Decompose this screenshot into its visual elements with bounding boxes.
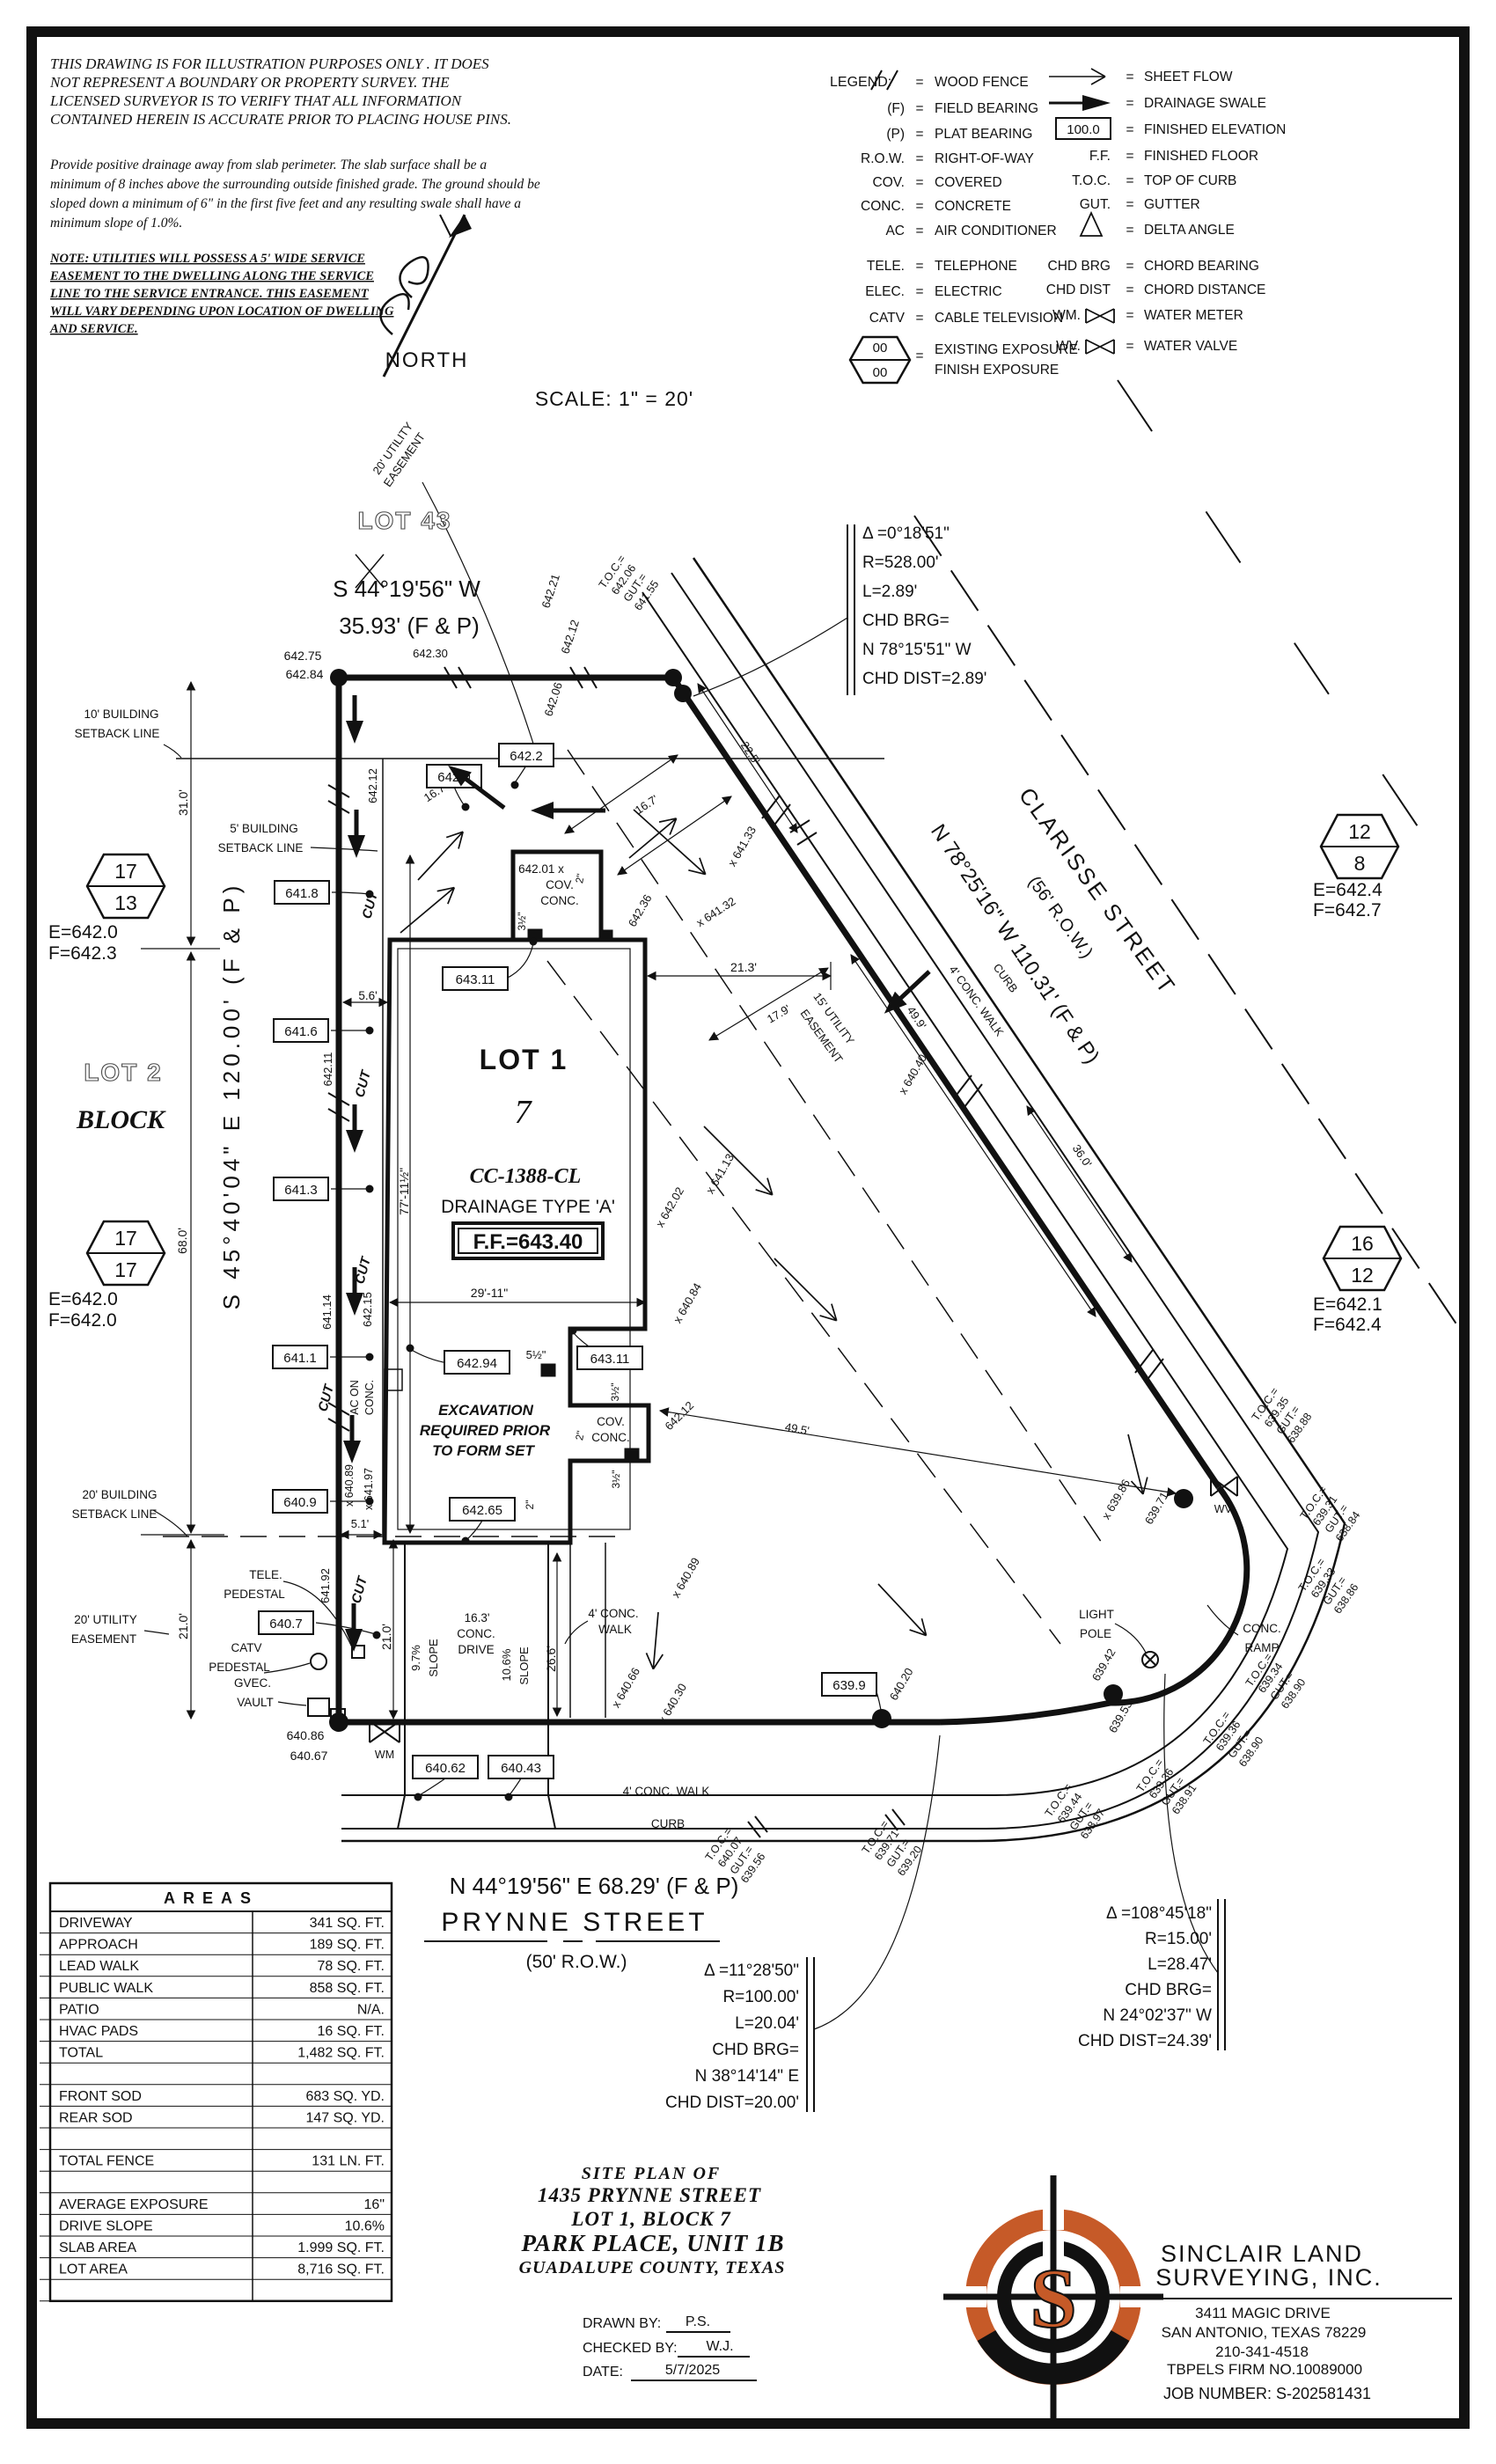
water-valve-legend-icon [1086, 340, 1114, 354]
elevation-box-value: 639.9 [832, 1678, 866, 1693]
elevation-box-value: 642.2 [510, 749, 543, 764]
curve-data-2-line: L=20.04' [735, 2014, 799, 2033]
finished-elevation-box: 640.7 [259, 1611, 313, 1634]
finished-elevation-box: 642.2 [499, 744, 554, 766]
toc-gutter-stack: T.O.C.=639.31GUT.=638.84 [1298, 1484, 1363, 1544]
plan-label: PEDESTAL [209, 1661, 270, 1674]
areas-row-value: 16 SQ. FT. [318, 2024, 385, 2039]
finished-elevation-box: 642.94 [444, 1351, 510, 1374]
plan-label: 21.3' [730, 960, 757, 974]
finish-exposure-value: 00 [873, 365, 888, 380]
toc-gutter-stack: T.O.C.=639.36GUT.=638.90 [1201, 1709, 1266, 1769]
curve-data-1-line: Δ =0°18'51" [862, 524, 950, 543]
legend-desc: CHORD DISTANCE [1144, 282, 1265, 297]
plan-label: TO FORM SET [432, 1442, 535, 1459]
plan-label: CURB [651, 1817, 685, 1830]
plan-label: 16.3' [465, 1611, 490, 1624]
disclaimer: THIS DRAWING IS FOR ILLUSTRATION PURPOSE… [49, 55, 511, 128]
plan-label: WALK [598, 1623, 632, 1636]
plan-label: x 641.32 [694, 894, 738, 929]
exposure-hexagon: 1612 [1324, 1227, 1401, 1290]
legend-symbol-text: GUT. [1080, 197, 1111, 212]
plan-label: x 640.30 [656, 1681, 689, 1726]
legend-symbol-text: R.O.W. [861, 151, 905, 166]
plan-label: 4' CONC. WALK [623, 1785, 710, 1798]
plan-label: 7 [515, 1094, 533, 1131]
finished-elevation-box: 641.6 [274, 1019, 328, 1042]
sheet-flow-arrow [418, 832, 463, 880]
plan-label: CATV [231, 1641, 261, 1654]
plan-label: 640.86 [287, 1728, 325, 1742]
drainage-swale-arrow [346, 1104, 363, 1153]
areas-table-title: AREAS [164, 1889, 259, 1907]
utility-note-line: NOTE: UTILITIES WILL POSSESS A 5' WIDE S… [49, 252, 365, 266]
water-meter-legend-icon [1086, 309, 1114, 323]
plan-label: S 45°40'04" E 120.00' (F & P) [218, 882, 245, 1310]
legend-symbol-text: CHD DIST [1046, 282, 1111, 297]
legend-symbol-text: ELEC. [865, 284, 905, 299]
plan-label: 641.92 [319, 1568, 332, 1603]
plan-label: CUT [348, 1573, 370, 1605]
legend-desc: FINISH EXPOSURE [935, 363, 1059, 378]
curve-data-1-line: CHD DIST=2.89' [862, 670, 986, 688]
step-mark [601, 930, 612, 941]
sheet-label: W.J. [706, 2339, 733, 2354]
curve-data-3-line: CHD DIST=24.39' [1078, 2032, 1212, 2050]
areas-row-label: LEAD WALK [59, 1959, 139, 1974]
row-line-dashed [1118, 380, 1461, 891]
sheet-label: 5/7/2025 [665, 2363, 720, 2378]
elevation-box-value: 641.8 [285, 886, 319, 901]
legend-equals: = [915, 311, 923, 326]
curve-data-bars [807, 524, 1225, 2112]
plan-label: 3½" [609, 1383, 621, 1402]
arrow-lines [629, 818, 677, 858]
legend-desc: WATER VALVE [1144, 339, 1237, 354]
disclaimer-line: CONTAINED HEREIN IS ACCURATE PRIOR TO PL… [50, 111, 511, 128]
plan-label: 68.0' [175, 1228, 189, 1254]
plan-label: BLOCK [76, 1105, 166, 1134]
plan-label: 642.21 [539, 572, 562, 609]
plan-label: 642.15 [361, 1292, 374, 1327]
plan-label: F=642.4 [1313, 1315, 1382, 1335]
plan-label: SLOPE [517, 1646, 531, 1685]
curve-data-3-line: Δ =108°45'18" [1106, 1904, 1212, 1923]
plan-label: x 640.84 [671, 1280, 704, 1325]
utility-note-line: EASEMENT TO THE DWELLING ALONG THE SERVI… [49, 269, 374, 283]
sheet-label: S [1030, 2251, 1076, 2345]
curve-data-2-line: R=100.00' [722, 1988, 799, 2006]
arrow-head [348, 835, 365, 858]
plan-label: 21.0' [176, 1613, 190, 1639]
plan-label: N 44°19'56" E 68.29' (F & P) [450, 1873, 739, 1899]
plan-label: CUT [352, 1067, 374, 1099]
plan-label: 642.36 [626, 892, 655, 929]
toc-gutter-stack: T.O.C.=639.71GUT.=639.20 [860, 1818, 925, 1878]
legend-desc: ELECTRIC [935, 284, 1002, 299]
drainage-note-line: minimum slope of 1.0%. [50, 216, 182, 231]
plan-label: SETBACK LINE [218, 841, 304, 854]
arrow-head [531, 802, 554, 819]
plan-label: 4' CONC. [588, 1607, 638, 1620]
plan-label: COV. [546, 878, 574, 891]
curve-data-2-line: CHD BRG= [712, 2041, 799, 2059]
plan-label: 10' BUILDING [84, 708, 158, 721]
plan-label: 3½" [516, 913, 528, 931]
drainage-note-line: sloped down a minimum of 6" in the first… [50, 196, 521, 211]
sheet-label: 3411 MAGIC DRIVE [1195, 2305, 1331, 2321]
areas-row-label: REAR SOD [59, 2110, 133, 2125]
step-mark [625, 1448, 639, 1461]
sheet-flow-icon [1049, 69, 1105, 84]
legend-desc: CONCRETE [935, 199, 1011, 214]
plan-label: GVEC. [234, 1676, 271, 1690]
plan-label: 642.01 x [518, 862, 564, 876]
legend-equals: = [915, 259, 923, 274]
toc-gutter-stack: T.O.C.=642.06GUT.=641.55 [597, 553, 662, 612]
plan-label: x 640.40 [896, 1052, 929, 1096]
sheet-label: TBPELS FIRM NO.10089000 [1167, 2361, 1362, 2378]
sheet-label: DATE: [583, 2365, 623, 2380]
areas-row-label: PATIO [59, 2002, 99, 2017]
legend-equals: = [1126, 173, 1133, 188]
finished-elevation-box: 640.62 [413, 1756, 478, 1778]
legend-equals: = [1126, 122, 1133, 137]
plan-label: LIGHT [1079, 1608, 1114, 1621]
dimension-line [660, 1411, 1176, 1493]
areas-row-value: 189 SQ. FT. [310, 1938, 385, 1953]
plan-label: 2" [573, 1430, 587, 1441]
plan-label: CC-1388-CL [470, 1165, 582, 1188]
legend-equals: = [915, 224, 923, 238]
sheet-label: 210-341-4518 [1215, 2343, 1309, 2360]
finished-elevation-sample: 100.0 [1067, 122, 1100, 137]
elevation-box-value: 642.94 [457, 1356, 497, 1371]
plan-label: 641.14 [320, 1294, 334, 1330]
legend-desc: TOP OF CURB [1144, 173, 1236, 188]
areas-row-value: N/A. [357, 2002, 385, 2017]
toc-gutter-stack: T.O.C.=639.35GUT.=638.88 [1250, 1385, 1315, 1445]
finished-elevation-box: 640.43 [488, 1756, 554, 1778]
plan-label: VAULT [237, 1696, 274, 1709]
curve-data-1-line: R=528.00' [862, 554, 939, 572]
sheet-flow-arrow [878, 1584, 927, 1636]
plan-label: 20' BUILDING [82, 1488, 157, 1501]
finished-elevation-box: 641.3 [274, 1177, 328, 1200]
sheet-label: SAN ANTONIO, TEXAS 78229 [1162, 2324, 1367, 2341]
sheet-flow-arrow [629, 818, 677, 858]
exposure-hexagon: 1717 [87, 1221, 165, 1285]
finish-exposure-value: 17 [114, 1258, 137, 1281]
sheet-label: SITE PLAN OF [582, 2164, 721, 2183]
plan-label: 5.1' [351, 1517, 370, 1530]
plan-label: CONC. [363, 1380, 376, 1415]
sheet-label: SURVEYING, INC. [1155, 2264, 1382, 2291]
sheet-flow-arrow [646, 1612, 663, 1669]
areas-row-label: HVAC PADS [59, 2024, 138, 2039]
plan-label: (50' R.O.W.) [526, 1952, 627, 1972]
legend-desc: GUTTER [1144, 197, 1200, 212]
legend-equals: = [1126, 223, 1133, 238]
elevation-box-value: 641.1 [283, 1351, 317, 1366]
plan-label: x 641.97 [363, 1468, 375, 1510]
areas-row-label: LOT AREA [59, 2262, 128, 2277]
arrow-lines [878, 1584, 927, 1636]
plan-label: PRYNNE STREET [441, 1908, 708, 1937]
plan-label: DRIVE [458, 1643, 494, 1656]
drainage-swale-arrow [343, 1415, 361, 1463]
elevation-box-value: 640.43 [501, 1761, 541, 1776]
legend-equals: = [915, 127, 923, 142]
legend-equals: = [915, 284, 923, 299]
arrow-lines [400, 888, 454, 933]
legend-desc: FINISHED FLOOR [1144, 149, 1258, 164]
legend-equals: = [915, 101, 923, 116]
plan-label: 639.71 [1142, 1490, 1171, 1527]
legend-equals: = [915, 348, 923, 363]
legend-desc: CABLE TELEVISION [935, 311, 1063, 326]
generated-annotations: THIS DRAWING IS FOR ILLUSTRATION PURPOSE… [40, 55, 1401, 2402]
legend-equals: = [1126, 70, 1133, 84]
arrow-lines [646, 1612, 663, 1669]
plan-label: 3½" [610, 1470, 622, 1489]
legend-desc: FINISHED ELEVATION [1144, 122, 1286, 137]
plan-label: 642.75 [284, 649, 322, 663]
utility-note-line: AND SERVICE. [49, 322, 138, 336]
existing-exposure-value: 17 [114, 1227, 137, 1250]
plan-label: F=642.0 [48, 1310, 117, 1331]
arrow-lines [774, 1258, 837, 1321]
step-mark [541, 1364, 555, 1376]
drainage-note-line: minimum of 8 inches above the surroundin… [50, 177, 540, 192]
survey-sheet: THIS DRAWING IS FOR ILLUSTRATION PURPOSE… [0, 0, 1496, 2464]
plan-label: WV. [1214, 1503, 1234, 1515]
plan-label: COV. [597, 1415, 625, 1428]
legend-symbol-text: (P) [886, 127, 905, 142]
plan-label: 642.06 [541, 680, 565, 717]
areas-row-value: 78 SQ. FT. [318, 1959, 385, 1974]
plan-label: REQUIRED PRIOR [420, 1422, 551, 1439]
legend-symbol-text: CONC. [861, 199, 905, 214]
legend-desc: WATER METER [1144, 308, 1243, 323]
curve-data-1-line: CHD BRG= [862, 612, 950, 630]
plan-label: 29'-11" [471, 1286, 508, 1300]
elevation-box-value: 643.11 [456, 972, 495, 987]
finished-elevation-box: 641.8 [275, 881, 329, 904]
areas-row-value: 683 SQ. YD. [305, 2089, 385, 2104]
areas-row-label: SLAB AREA [59, 2240, 136, 2255]
areas-row-value: 341 SQ. FT. [310, 1916, 385, 1931]
arrow-head [346, 721, 363, 744]
areas-row-value: 858 SQ. FT. [310, 1981, 385, 1996]
areas-table: AREASDRIVEWAY341 SQ. FT.APPROACH189 SQ. … [40, 1883, 392, 2301]
existing-exposure-value: 12 [1348, 820, 1371, 843]
areas-row-value: 1.999 SQ. FT. [297, 2240, 385, 2255]
site-plan-drawing: THIS DRAWING IS FOR ILLUSTRATION PURPOSE… [0, 0, 1496, 2464]
curve-data-1-line: L=2.89' [862, 583, 917, 601]
drainage-swale-head [1082, 95, 1111, 111]
finished-elevation-box: 642.65 [450, 1498, 515, 1521]
plan-label: CUT [315, 1382, 337, 1413]
curve-data-3-line: R=15.00' [1145, 1930, 1212, 1948]
toc-gutter-stack: T.O.C.=639.33GUT.=638.86 [1296, 1556, 1361, 1616]
plan-label: LOT 1 [480, 1044, 568, 1075]
legend-equals: = [1126, 149, 1133, 164]
areas-row-label: FRONT SOD [59, 2089, 142, 2104]
sheet-label: 1435 PRYNNE STREET [538, 2184, 761, 2206]
sheet-label: SINCLAIR LAND [1161, 2240, 1363, 2267]
curve-data-2-line: Δ =11°28'50" [704, 1962, 799, 1980]
legend-symbol-text: TELE. [867, 259, 905, 274]
finish-exposure-value: 12 [1351, 1264, 1374, 1287]
plan-label: 2" [573, 873, 587, 884]
plan-label: POLE [1080, 1627, 1111, 1640]
areas-row-label: TOTAL [59, 2046, 103, 2061]
plan-label: CONC. [457, 1627, 495, 1640]
legend-symbol-text: T.O.C. [1072, 173, 1111, 188]
plan-label: 5' BUILDING [230, 822, 298, 835]
light-pole-cross [1144, 1654, 1156, 1666]
plan-label: SETBACK LINE [72, 1507, 158, 1521]
areas-row-label: AVERAGE EXPOSURE [59, 2197, 209, 2212]
plan-label: x 641.33 [725, 824, 759, 869]
curve-data-1-line: N 78°15'51" W [862, 641, 972, 659]
plan-label: NORTH [385, 348, 469, 372]
legend-equals: = [1126, 339, 1133, 354]
elevation-box-value: 643.11 [590, 1352, 630, 1367]
legend: LEGEND:=WOOD FENCE(F)=FIELD BEARING(P)=P… [830, 69, 1286, 383]
utility-note-line: LINE TO THE SERVICE ENTRANCE. THIS EASEM… [49, 287, 370, 301]
ff-value: F.F.=643.40 [473, 1230, 583, 1254]
plan-label: 640.20 [887, 1666, 916, 1703]
plan-label: 5½" [526, 1348, 546, 1361]
areas-row-label: DRIVE SLOPE [59, 2218, 153, 2233]
sheet-flow-arrow [774, 1258, 837, 1321]
sheet-label: LOT 1, BLOCK 7 [570, 2208, 731, 2230]
legend-symbol-text: CATV [869, 311, 906, 326]
legend-equals: = [1126, 259, 1133, 274]
plan-label: x 641.13 [703, 1151, 737, 1196]
disclaimer-line: NOT REPRESENT A BOUNDARY OR PROPERTY SUR… [49, 74, 450, 91]
legend-equals: = [915, 151, 923, 166]
plan-label: E=642.0 [48, 922, 118, 942]
curve-data-3-line: CHD BRG= [1125, 1981, 1212, 1999]
toc-gutter-stack: T.O.C.=639.34GUT.=638.90 [1243, 1651, 1309, 1711]
curve-data-3-line: L=28.47' [1148, 1955, 1212, 1974]
legend-equals: = [915, 199, 923, 214]
legend-desc: DRAINAGE SWALE [1144, 96, 1266, 111]
arrow-head [346, 1130, 363, 1153]
sheet-label: GUADALUPE COUNTY, TEXAS [519, 2258, 786, 2277]
areas-row-value: 10.6% [345, 2218, 385, 2233]
plan-label: 21.0' [379, 1624, 393, 1650]
plan-label: 639.42 [1089, 1646, 1118, 1683]
plan-label: 77'-11½" [397, 1168, 411, 1215]
areas-row-value: 8,716 SQ. FT. [297, 2262, 385, 2277]
sheet-label: DRAWN BY: [583, 2316, 661, 2331]
exposure-hexagon: 0000 [850, 337, 910, 383]
plan-label: SCALE: 1" = 20' [535, 387, 693, 410]
existing-exposure-value: 00 [873, 341, 888, 356]
plan-label: 640.67 [290, 1749, 328, 1763]
plan-label: SETBACK LINE [75, 727, 160, 740]
finished-elevation-box: 641.1 [273, 1346, 327, 1368]
areas-row-label: TOTAL FENCE [59, 2154, 154, 2169]
legend-equals: = [1126, 308, 1133, 323]
finished-floor-box: F.F.=643.40 [453, 1223, 603, 1258]
legend-title: LEGEND: [830, 75, 891, 90]
sheet-label: P.S. [686, 2314, 710, 2329]
finished-elevation-box: 643.11 [577, 1346, 642, 1369]
elevation-box-value: 640.62 [425, 1761, 466, 1776]
plan-label: E=642.4 [1313, 880, 1382, 900]
drainage-swale-arrow [531, 802, 605, 819]
plan-label: 642.84 [286, 667, 324, 681]
legend-equals: = [915, 175, 923, 190]
curve-data-3: Δ =108°45'18"R=15.00'L=28.47'CHD BRG=N 2… [1078, 1904, 1212, 2050]
plan-label: TELE. [249, 1568, 282, 1581]
legend-desc: PLAT BEARING [935, 127, 1032, 142]
elevation-box-value: 640.7 [269, 1617, 303, 1632]
finish-exposure-value: 13 [114, 891, 137, 914]
legend-equals: = [915, 75, 923, 90]
plan-label: AC ON [348, 1380, 361, 1415]
legend-desc: DELTA ANGLE [1144, 223, 1235, 238]
plan-label: 642.12 [558, 618, 582, 655]
sheet-label: JOB NUMBER: S-202581431 [1163, 2385, 1371, 2402]
arrow-lines [418, 832, 463, 880]
curve-data-3-line: N 24°02'37" W [1103, 2006, 1212, 2025]
curve-data-2-line: N 38°14'14" E [695, 2067, 799, 2086]
utility-note-line: WILL VARY DEPENDING UPON LOCATION OF DWE… [50, 304, 394, 319]
legend-desc: FIELD BEARING [935, 101, 1038, 116]
catv-pedestal-icon [311, 1654, 326, 1669]
plan-label: 5.6' [358, 989, 377, 1002]
legend-symbol-text: F.F. [1089, 149, 1111, 164]
finished-elevation-box: 640.9 [273, 1490, 327, 1513]
arrow-head [345, 1629, 363, 1652]
plan-label: 35.93' (F & P) [339, 612, 480, 639]
legend-symbol-text: WV. [1056, 339, 1081, 354]
legend-desc: COVERED [935, 175, 1002, 190]
legend-symbol-text: WM. [1052, 308, 1081, 323]
plan-label: 2" [524, 1500, 536, 1510]
plan-label: 26.6' [544, 1646, 558, 1672]
finish-exposure-value: 8 [1354, 852, 1366, 875]
areas-row-value: 1,482 SQ. FT. [297, 2046, 385, 2061]
curve-data-2: Δ =11°28'50"R=100.00'L=20.04'CHD BRG=N 3… [665, 1962, 799, 2112]
plan-label: CONC. [540, 894, 579, 907]
plan-geometry [32, 32, 1464, 2424]
legend-symbol-text: CHD BRG [1048, 259, 1111, 274]
plan-label: S 44°19'56" W [333, 576, 480, 602]
plan-label: 642.12 [366, 768, 379, 803]
legend-symbol-text: AC [885, 224, 905, 238]
plan-label: E=642.1 [1313, 1294, 1382, 1315]
legend-symbol-text: (F) [887, 101, 905, 116]
plan-label: 10.6% [500, 1648, 513, 1681]
plan-label: F=642.3 [48, 943, 117, 964]
legend-equals: = [1126, 197, 1133, 212]
plan-label: WM [375, 1749, 394, 1761]
legend-symbol-text: COV. [873, 175, 905, 190]
plan-label: 31.0' [176, 789, 190, 816]
plan-label: x 640.66 [609, 1665, 642, 1710]
areas-row-label: DRIVEWAY [59, 1916, 133, 1931]
disclaimer-line: THIS DRAWING IS FOR ILLUSTRATION PURPOSE… [50, 55, 489, 72]
drainage-swale-arrow [348, 810, 365, 858]
plan-label: LOT 43 [358, 507, 452, 534]
